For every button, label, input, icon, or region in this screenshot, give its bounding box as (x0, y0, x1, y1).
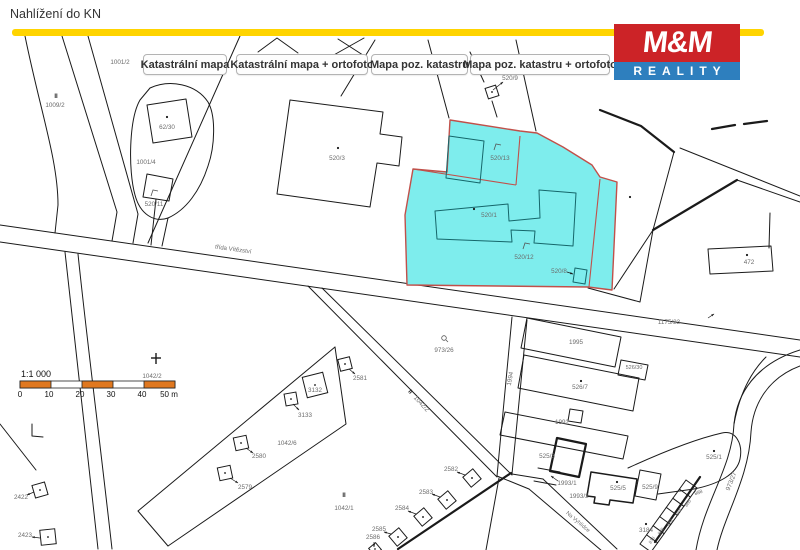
map-label: 2580 (252, 453, 267, 460)
map-label: 520/8 (551, 268, 567, 275)
map-label: II (54, 94, 58, 100)
mm-reality-logo: M&M REALITY (614, 24, 740, 80)
map-label: 1993/2 (569, 493, 589, 500)
map-label: 2582 (444, 466, 459, 473)
map-label: 62/30 (159, 124, 175, 131)
map-label: 973/27 (725, 471, 739, 492)
map-label: 973/26 (434, 347, 454, 354)
scalebar-ticks: 0 10 20 30 40 50 m (18, 390, 178, 399)
cadastral-map[interactable]: 1:1 000 0 10 20 30 40 50 m 1001/2II1009/… (0, 0, 800, 550)
map-label: 2423 (18, 532, 33, 539)
map-label: 3132 (308, 387, 323, 394)
map-label: II (342, 493, 346, 499)
scalebar-ratio: 1:1 000 (21, 369, 51, 379)
page-title: Nahlížení do KN (10, 7, 101, 21)
btn-mapa-poz-katastru-ortofoto[interactable]: Mapa poz. katastru + ortofoto (470, 54, 610, 75)
map-label: 2422 (14, 494, 29, 501)
map-label: 1992 (555, 419, 570, 426)
map-label: 2579 (238, 484, 253, 491)
map-label: 1009/2 (45, 102, 65, 109)
svg-text:40: 40 (138, 390, 147, 399)
map-label: 526/30 (626, 365, 643, 371)
map-label: 2584 (395, 505, 410, 512)
small-buildings (32, 85, 499, 550)
kn-map-viewer: 1:1 000 0 10 20 30 40 50 m 1001/2II1009/… (0, 0, 800, 550)
church-cross-symbol (151, 353, 161, 364)
map-label: 2585 (372, 526, 387, 533)
map-label: 1042/1 (334, 505, 354, 512)
label-arrows (27, 82, 714, 547)
map-linework (0, 36, 800, 550)
btn-katastralni-mapa-ortofoto[interactable]: Katastrální mapa + ortofoto (236, 54, 368, 75)
corner-symbol (151, 190, 158, 196)
map-label: 520/12 (514, 254, 534, 261)
btn-mapa-poz-katastru[interactable]: Mapa poz. katastru (371, 54, 468, 75)
map-label: 472 (744, 259, 755, 266)
map-label: 882 (666, 517, 675, 526)
map-label: 1001/4 (136, 159, 156, 166)
map-label: 525/1 (706, 454, 722, 461)
map-label: 520/1 (481, 212, 497, 219)
map-label: 520/9 (502, 75, 518, 82)
orchard-symbol (442, 336, 448, 342)
map-label: 1001/2 (110, 59, 130, 66)
highlighted-parcel-group[interactable] (405, 120, 617, 290)
parcel-labels: 1001/2II1009/262/301001/4520/11520/3520/… (14, 59, 755, 545)
map-label: 2581 (353, 375, 368, 382)
map-label: 3184 (639, 527, 654, 534)
map-label: 1993/1 (557, 480, 577, 487)
map-label: 525/3 (539, 453, 555, 460)
map-label: 1042/2 (412, 395, 431, 414)
map-label: II (406, 389, 413, 396)
btn-katastralni-mapa[interactable]: Katastrální mapa (143, 54, 227, 75)
map-label: 1042/6 (277, 440, 297, 447)
svg-text:0: 0 (18, 390, 23, 399)
map-label: 520/3 (329, 155, 345, 162)
svg-text:20: 20 (76, 390, 85, 399)
map-label: třída Vítězství (215, 244, 252, 255)
map-label: 520/11 (145, 201, 164, 208)
logo-reality-text: REALITY (614, 62, 740, 80)
map-label: 520/13 (490, 155, 510, 162)
highlight-outline[interactable] (405, 120, 617, 290)
map-label: 525/5 (610, 485, 626, 492)
map-label: 1995 (569, 339, 584, 346)
svg-text:30: 30 (107, 390, 116, 399)
logo-mm-text: M&M (614, 24, 740, 62)
svg-text:50 m: 50 m (160, 390, 178, 399)
map-label: 1994 (506, 371, 515, 387)
map-label: 525/9 (642, 484, 658, 491)
map-label: 3133 (298, 412, 313, 419)
map-label: 2583 (419, 489, 434, 496)
map-label: 526/7 (572, 384, 588, 391)
map-label: 1175/23 (658, 319, 681, 326)
map-label: 1042/2 (142, 373, 162, 380)
map-label: 2586 (366, 534, 381, 541)
svg-text:10: 10 (45, 390, 54, 399)
